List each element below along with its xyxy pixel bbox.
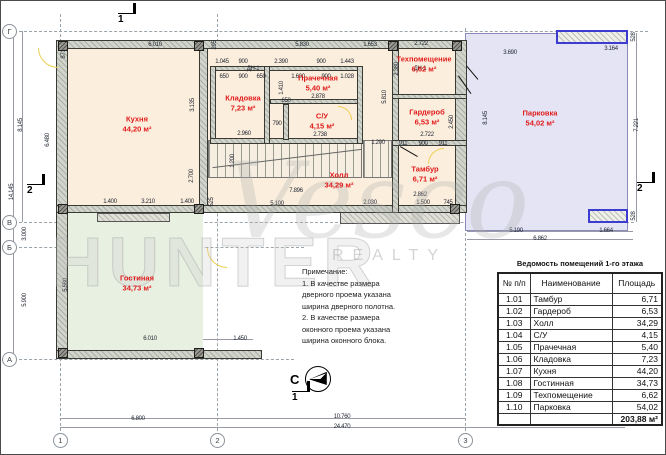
cell-name: Кухня: [530, 365, 612, 377]
room-label: Холл34,29 м²: [325, 171, 354, 190]
section-marker: 2: [637, 172, 655, 194]
dimension-label: 528: [631, 32, 637, 41]
axis-bubble: 3: [458, 433, 473, 448]
wall: [392, 94, 467, 99]
wall: [56, 40, 467, 49]
dimension-label: 5.100: [270, 201, 284, 207]
section-marker: 1: [292, 381, 310, 403]
section-number: 2: [27, 185, 45, 196]
dimension-label: 2.700: [189, 169, 195, 183]
table-row: 1.03Холл34,29: [498, 317, 662, 329]
dimension-label: 2.722: [414, 41, 428, 47]
dimension-label: 8.145: [18, 118, 24, 132]
table-title: Ведомость помещений 1-го этажа: [497, 259, 663, 268]
dimension-label: 1.045: [215, 59, 229, 65]
dimension-label: 5.830: [295, 42, 309, 48]
empty-cell: [498, 413, 530, 425]
room-label: Гардероб6,53 м²: [409, 108, 444, 127]
cell-area: 6,62: [612, 389, 662, 401]
table-row: 1.01Тамбур6,71: [498, 293, 662, 305]
dimension-label: 5.900: [22, 293, 28, 307]
rooms-table: № п/п Наименование Площадь 1.01Тамбур6,7…: [497, 272, 663, 426]
dimension-label: 900: [316, 59, 325, 65]
dimension-label: 525: [209, 197, 215, 206]
dimension-label: 650: [256, 74, 265, 80]
cell-area: 6,71: [612, 293, 662, 305]
dimension-label: 5.580: [63, 278, 69, 292]
dimension-line: [467, 239, 633, 240]
dimension-label: 24.470: [334, 424, 351, 430]
wall: [210, 66, 363, 71]
table-row: 1.08Гостинная34,73: [498, 377, 662, 389]
window-strip: [97, 213, 170, 222]
cell-area: 44,20: [612, 365, 662, 377]
room-label: Гостиная34,73 м²: [120, 274, 154, 293]
room-area: 6,62 м²: [397, 64, 452, 74]
dimension-label: 3.000: [22, 227, 28, 241]
axis-bubble: В: [2, 215, 17, 230]
cell-number: 1.08: [498, 377, 530, 389]
section-flag-icon: [637, 172, 655, 183]
table-row: 1.04С/У4,15: [498, 329, 662, 341]
cell-number: 1.03: [498, 317, 530, 329]
cell-name: Холл: [530, 317, 612, 329]
note-line: оконного проема указана: [302, 324, 462, 336]
dimension-label: 1.500: [416, 200, 430, 206]
dimension-label: 2.862: [413, 192, 427, 198]
col-name: Наименование: [530, 273, 612, 293]
dimension-label: 1.200: [230, 154, 236, 168]
dimension-label: 5.190: [509, 228, 523, 234]
room-label: Кладовка7,23 м²: [225, 94, 260, 113]
dimension-label: 7.896: [289, 188, 303, 194]
room-area: 6,53 м²: [409, 117, 444, 127]
dimension-label: 295: [212, 40, 218, 49]
dimension-label: 528: [631, 211, 637, 220]
notes-block: Примечание:1. В качестве размерадверного…: [302, 266, 462, 347]
cell-name: С/У: [530, 329, 612, 341]
section-flag-icon: [292, 381, 310, 392]
dimension-label: 1.410: [279, 81, 285, 95]
dimension-label: 1.400: [103, 199, 117, 205]
wall: [210, 66, 216, 144]
axis-bubble: А: [2, 352, 17, 367]
room-area: 34,73 м²: [120, 283, 154, 293]
door-arc: [207, 248, 227, 268]
column: [58, 204, 68, 214]
room-area: 7,23 м²: [225, 103, 260, 113]
dimension-label: 5.810: [382, 90, 388, 104]
wall: [56, 350, 262, 359]
dimension-label: 3.164: [604, 46, 618, 52]
table-row: 1.09Техпомещение6,62: [498, 389, 662, 401]
room-name: Кухня: [123, 115, 152, 125]
dimension-label: 8.145: [483, 111, 489, 125]
room-area: 44,20 м²: [123, 124, 152, 134]
dimension-label: 2.878: [311, 94, 325, 100]
dimension-label: 1.028: [340, 74, 354, 80]
table-row: 1.06Кладовка7,23: [498, 353, 662, 365]
table-row: 1.05Прачечная5,40: [498, 341, 662, 353]
room-name: Парковка: [523, 109, 558, 119]
dimension-label: 2.960: [237, 131, 251, 137]
room-name: Холл: [325, 171, 354, 181]
cell-number: 1.06: [498, 353, 530, 365]
dimension-label: 2.030: [363, 200, 377, 206]
dimension-label: 6.480: [45, 133, 51, 147]
cell-name: Гостинная: [530, 377, 612, 389]
dimension-label: 900: [418, 141, 427, 147]
note-line: Примечание:: [302, 266, 462, 278]
cell-area: 34,73: [612, 377, 662, 389]
cell-area: 34,29: [612, 317, 662, 329]
entrance-porch: [340, 212, 460, 224]
axis-bubble: 2: [210, 433, 225, 448]
section-number: 1: [292, 392, 310, 403]
axis-bubble: Г: [2, 24, 17, 39]
total-area: 203,88 м²: [612, 413, 662, 425]
dimension-label: 871: [61, 49, 67, 58]
column: [194, 41, 204, 51]
wall: [357, 66, 363, 144]
column: [388, 41, 398, 51]
section-number: 1: [118, 14, 136, 25]
dimension-line: [60, 418, 465, 419]
dimension-label: 3.690: [503, 50, 517, 56]
dimension-label: 790: [272, 121, 281, 127]
column: [194, 204, 204, 214]
room-area: 4,15 м²: [310, 121, 335, 131]
cell-number: 1.05: [498, 341, 530, 353]
dimension-label: 3.135: [190, 98, 196, 112]
axis-line: [14, 31, 648, 32]
dimension-label: 1.450: [233, 336, 247, 342]
cell-name: Парковка: [530, 401, 612, 413]
wall: [56, 205, 467, 213]
axis-line: [14, 359, 294, 360]
parking-gate-top: [556, 30, 628, 44]
dimension-label: 6.800: [131, 416, 145, 422]
room-area: 54,02 м²: [523, 118, 558, 128]
wall: [199, 48, 208, 206]
dimension-label: 911: [399, 141, 408, 147]
table-total-row: 203,88 м²: [498, 413, 662, 425]
section-flag-icon: [27, 174, 45, 185]
dimension-label: 6.010: [143, 336, 157, 342]
room-name: С/У: [310, 112, 335, 122]
dimension-label: 10.760: [334, 414, 351, 420]
cell-number: 1.07: [498, 365, 530, 377]
dimension-label: 650: [219, 74, 228, 80]
column: [194, 348, 204, 358]
section-flag-icon: [118, 3, 136, 14]
room-name: Гостиная: [120, 274, 154, 284]
axis-bubble: Б: [2, 240, 17, 255]
dimension-label: 7.221: [634, 118, 640, 132]
cell-number: 1.04: [498, 329, 530, 341]
dimension-label: 1.653: [363, 42, 377, 48]
cell-number: 1.10: [498, 401, 530, 413]
dimension-label: 900: [238, 74, 247, 80]
room-label: Техпомещение6,62 м²: [397, 55, 452, 74]
dimension-label: 14.145: [9, 184, 15, 201]
dimension-label: 2.390: [274, 59, 288, 65]
rooms-table-body: 1.01Тамбур6,711.02Гардероб6,531.03Холл34…: [498, 293, 662, 413]
note-line: ширина дверного полотна.: [302, 301, 462, 313]
dimension-label: 1.664: [599, 228, 613, 234]
room-area: 34,29 м²: [325, 180, 354, 190]
parking-area: [465, 33, 628, 231]
column: [452, 41, 462, 51]
parking-gate-bottom: [588, 209, 628, 223]
col-number: № п/п: [498, 273, 530, 293]
section-marker: 1: [118, 3, 136, 25]
room-label: Тамбур6,71 м²: [411, 165, 438, 184]
cell-area: 4,15: [612, 329, 662, 341]
floor-plan-sheet: С Примечание:1. В качестве размерадверно…: [0, 0, 666, 455]
cell-number: 1.09: [498, 389, 530, 401]
room-area: 5,40 м²: [298, 83, 338, 93]
note-line: ширина оконного блока.: [302, 335, 462, 347]
empty-cell: [530, 413, 612, 425]
door-arc: [38, 48, 58, 68]
dimension-label: 3.210: [141, 199, 155, 205]
dimension-label: 2.722: [420, 132, 434, 138]
dimension-label: 900: [238, 59, 247, 65]
cell-area: 5,40: [612, 341, 662, 353]
note-line: дверного проема указана: [302, 289, 462, 301]
dimension-label: 1.400: [180, 199, 194, 205]
room-label: Кухня44,20 м²: [123, 115, 152, 134]
cell-name: Тамбур: [530, 293, 612, 305]
section-number: 2: [637, 183, 655, 194]
rooms-table-panel: Ведомость помещений 1-го этажа № п/п Наи…: [497, 259, 663, 426]
dimension-label: 745: [443, 200, 452, 206]
cell-number: 1.02: [498, 305, 530, 317]
section-marker: 2: [27, 174, 45, 196]
table-row: 1.07Кухня44,20: [498, 365, 662, 377]
cell-area: 6,53: [612, 305, 662, 317]
col-area: Площадь: [612, 273, 662, 293]
cell-name: Техпомещение: [530, 389, 612, 401]
room-name: Прачечная: [298, 74, 338, 84]
dimension-label: 6.862: [533, 236, 547, 242]
dimension-label: 911: [439, 141, 448, 147]
room-label: С/У4,15 м²: [310, 112, 335, 131]
cell-name: Гардероб: [530, 305, 612, 317]
column: [58, 348, 68, 358]
dimension-label: 2.450: [449, 115, 455, 129]
room-name: Техпомещение: [397, 55, 452, 65]
note-line: 2. В качестве размера: [302, 312, 462, 324]
wall: [56, 40, 68, 359]
dimension-label: 2.738: [313, 132, 327, 138]
room-label: Парковка54,02 м²: [523, 109, 558, 128]
dimension-label: 1.200: [371, 140, 385, 146]
table-row: 1.10Парковка54,02: [498, 401, 662, 413]
room-label: Прачечная5,40 м²: [298, 74, 338, 93]
cell-number: 1.01: [498, 293, 530, 305]
cell-area: 7,23: [612, 353, 662, 365]
dimension-label: 6.010: [148, 42, 162, 48]
room-name: Кладовка: [225, 94, 260, 104]
dimension-label: 650: [281, 98, 290, 104]
wall: [283, 104, 289, 140]
cell-name: Кладовка: [530, 353, 612, 365]
dimension-label: 1.443: [340, 59, 354, 65]
table-header-row: № п/п Наименование Площадь: [498, 273, 662, 293]
room-name: Тамбур: [411, 165, 438, 175]
note-line: 1. В качестве размера: [302, 278, 462, 290]
room-area: 6,71 м²: [411, 174, 438, 184]
axis-bubble: 1: [53, 433, 68, 448]
room-name: Гардероб: [409, 108, 444, 118]
table-row: 1.02Гардероб6,53: [498, 305, 662, 317]
cell-area: 54,02: [612, 401, 662, 413]
dimension-label: ДН-1: [247, 66, 260, 72]
cell-name: Прачечная: [530, 341, 612, 353]
